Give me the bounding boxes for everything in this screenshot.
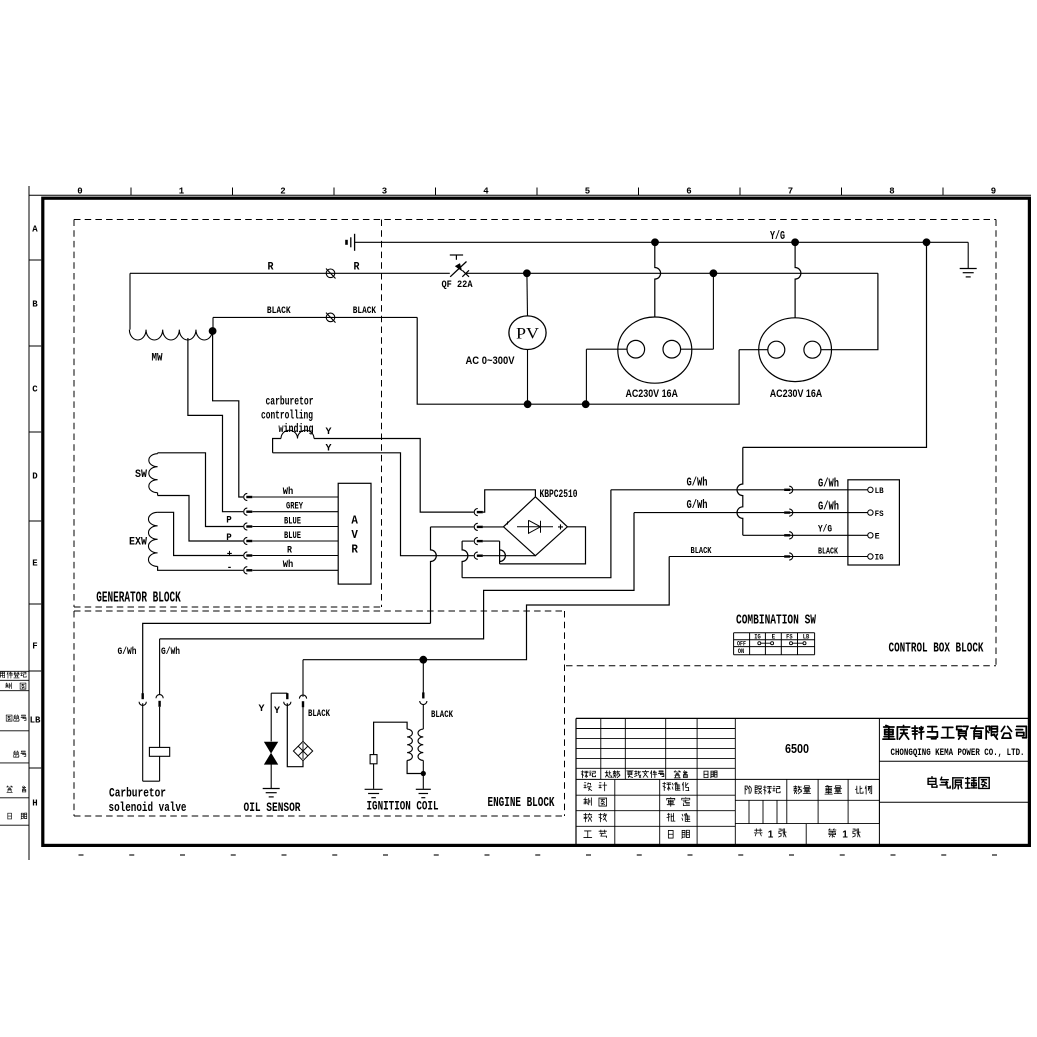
svg-text:1: 1 bbox=[842, 830, 848, 841]
svg-text:8: 8 bbox=[889, 187, 894, 197]
svg-text:ENGINE BLOCK: ENGINE BLOCK bbox=[488, 796, 556, 811]
svg-text:F: F bbox=[32, 642, 37, 652]
svg-text:G/Wh: G/Wh bbox=[818, 478, 839, 491]
svg-text:OIL SENSOR: OIL SENSOR bbox=[244, 800, 301, 815]
svg-text:Wh: Wh bbox=[283, 486, 294, 498]
svg-text:GENERATOR BLOCK: GENERATOR BLOCK bbox=[96, 591, 181, 607]
svg-text:Y/G: Y/G bbox=[818, 524, 832, 536]
svg-text:1: 1 bbox=[179, 187, 185, 197]
svg-text:MW: MW bbox=[152, 352, 163, 364]
svg-text:E: E bbox=[875, 532, 880, 542]
svg-text:AC230V 16A: AC230V 16A bbox=[625, 388, 678, 400]
svg-text:R: R bbox=[268, 261, 274, 273]
svg-text:BLACK: BLACK bbox=[353, 305, 377, 317]
svg-text:R: R bbox=[354, 261, 360, 273]
svg-text:6: 6 bbox=[686, 187, 691, 197]
svg-text:V: V bbox=[351, 529, 358, 542]
svg-text:LB: LB bbox=[30, 716, 41, 726]
svg-text:+: + bbox=[227, 549, 233, 561]
svg-text:LB: LB bbox=[803, 634, 810, 641]
svg-text:AC 0~300V: AC 0~300V bbox=[466, 355, 516, 367]
svg-text:COMBINATION SW: COMBINATION SW bbox=[736, 614, 817, 629]
svg-text:4: 4 bbox=[483, 187, 489, 197]
svg-text:3: 3 bbox=[382, 187, 387, 197]
svg-text:2: 2 bbox=[280, 187, 285, 197]
svg-text:1: 1 bbox=[768, 830, 774, 841]
svg-text:0: 0 bbox=[77, 187, 82, 197]
svg-text:Y: Y bbox=[259, 703, 266, 715]
svg-text:ON: ON bbox=[738, 648, 745, 655]
svg-text:B: B bbox=[32, 300, 38, 310]
svg-text:Wh: Wh bbox=[283, 559, 294, 571]
svg-text:BLACK: BLACK bbox=[818, 545, 838, 556]
svg-text:9: 9 bbox=[991, 187, 996, 197]
svg-text:BLUE: BLUE bbox=[284, 515, 301, 527]
svg-text:G/Wh: G/Wh bbox=[161, 646, 180, 658]
svg-text:G/Wh: G/Wh bbox=[687, 476, 708, 489]
svg-text:FS: FS bbox=[786, 634, 793, 641]
svg-text:A: A bbox=[32, 225, 38, 235]
svg-text:R: R bbox=[351, 544, 358, 557]
svg-text:G/Wh: G/Wh bbox=[118, 646, 137, 658]
svg-text:C: C bbox=[32, 385, 38, 395]
svg-text:KBPC2510: KBPC2510 bbox=[540, 489, 578, 501]
svg-text:BLACK: BLACK bbox=[308, 709, 330, 720]
svg-text:Y/G: Y/G bbox=[770, 230, 785, 243]
svg-text:E: E bbox=[772, 634, 776, 641]
svg-text:BLACK: BLACK bbox=[691, 545, 712, 556]
svg-text:R: R bbox=[287, 544, 293, 556]
svg-text:BLUE: BLUE bbox=[284, 530, 301, 542]
svg-text:Carburetor: Carburetor bbox=[109, 786, 166, 801]
svg-text:CHONGQING KEMA POWER CO., LTD.: CHONGQING KEMA POWER CO., LTD. bbox=[891, 748, 1025, 759]
svg-text:IG: IG bbox=[754, 634, 761, 641]
svg-text:IG: IG bbox=[875, 553, 884, 563]
svg-text:Y: Y bbox=[274, 705, 281, 717]
svg-text:SW: SW bbox=[135, 469, 147, 481]
svg-text:G/Wh: G/Wh bbox=[687, 499, 708, 512]
svg-text:FS: FS bbox=[875, 509, 884, 519]
svg-text:QF 22A: QF 22A bbox=[442, 279, 474, 291]
svg-text:LB: LB bbox=[875, 486, 884, 496]
svg-text:6500: 6500 bbox=[785, 741, 809, 756]
svg-text:controlling: controlling bbox=[261, 408, 313, 422]
svg-text:OFF: OFF bbox=[737, 641, 746, 648]
svg-text:PV: PV bbox=[516, 326, 540, 343]
svg-text:EXW: EXW bbox=[129, 537, 147, 549]
svg-text:7: 7 bbox=[788, 187, 793, 197]
svg-text:CONTROL BOX BLOCK: CONTROL BOX BLOCK bbox=[889, 642, 985, 657]
svg-text:GREY: GREY bbox=[286, 501, 303, 513]
svg-text:H: H bbox=[32, 799, 37, 809]
svg-text:IGNITION COIL: IGNITION COIL bbox=[367, 799, 439, 814]
svg-text:5: 5 bbox=[585, 187, 590, 197]
svg-text:Y: Y bbox=[326, 426, 333, 438]
svg-text:P: P bbox=[226, 515, 232, 527]
svg-text:D: D bbox=[32, 472, 38, 482]
svg-text:+: + bbox=[558, 523, 564, 534]
svg-text:solenoid valve: solenoid valve bbox=[109, 800, 187, 815]
svg-text:AC230V 16A: AC230V 16A bbox=[770, 388, 823, 400]
svg-text:A: A bbox=[351, 515, 358, 528]
svg-text:-: - bbox=[227, 562, 233, 574]
svg-text:BLACK: BLACK bbox=[431, 710, 453, 721]
svg-text:carburetor: carburetor bbox=[266, 394, 314, 408]
svg-text:BLACK: BLACK bbox=[267, 305, 291, 317]
svg-text:E: E bbox=[32, 559, 38, 569]
svg-text:G/Wh: G/Wh bbox=[818, 500, 839, 513]
svg-text:P: P bbox=[226, 532, 232, 544]
